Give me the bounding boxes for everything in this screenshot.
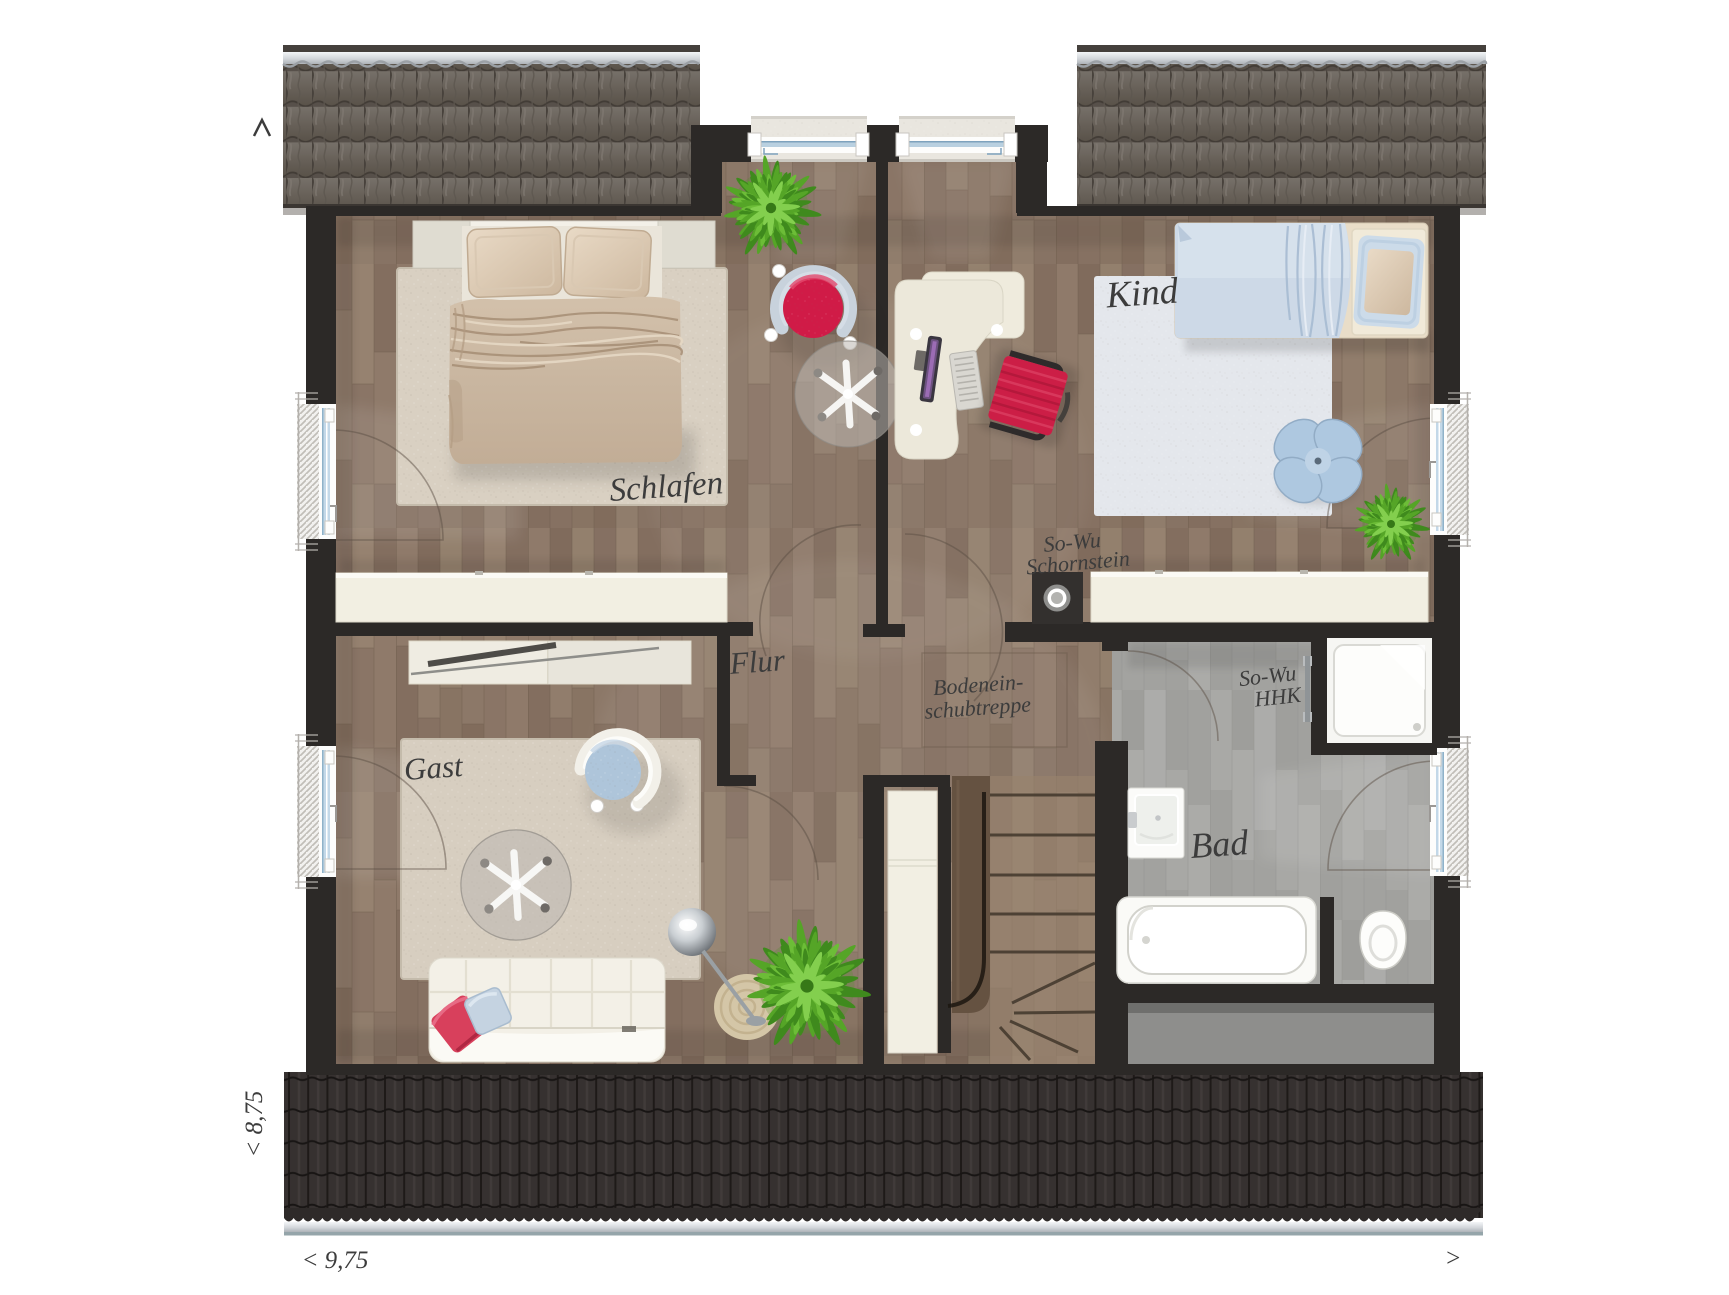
svg-text:HHK: HHK bbox=[1252, 682, 1303, 712]
svg-text:Bad: Bad bbox=[1189, 822, 1251, 866]
svg-text:Kind: Kind bbox=[1104, 271, 1180, 317]
svg-text:< 9,75: < 9,75 bbox=[302, 1247, 369, 1274]
svg-text:Flur: Flur bbox=[728, 642, 787, 681]
svg-text:Gast: Gast bbox=[403, 748, 465, 787]
svg-text:>: > bbox=[1445, 1245, 1462, 1272]
svg-text:< 8,75: < 8,75 bbox=[241, 1091, 268, 1158]
